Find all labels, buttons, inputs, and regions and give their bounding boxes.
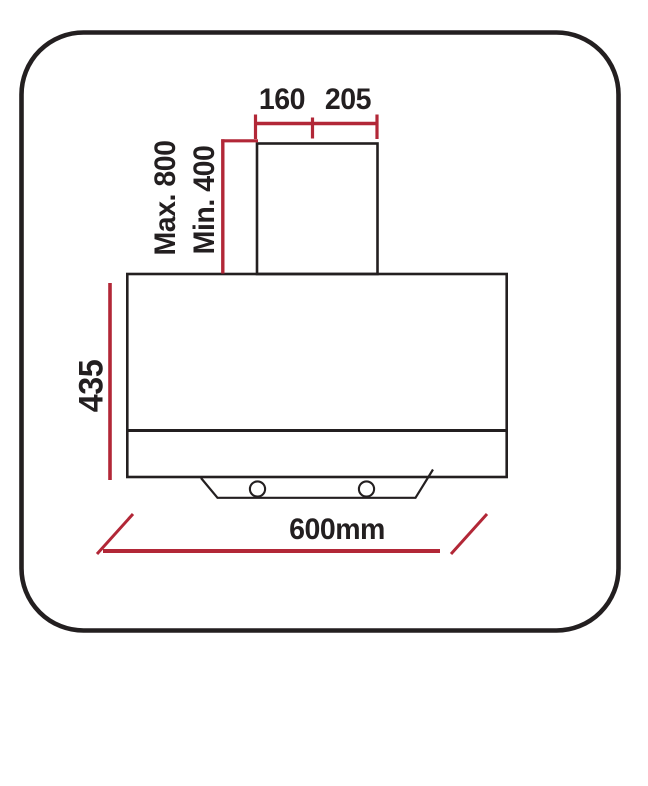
chimney-duct (257, 144, 378, 275)
chimney-max-height-label: Max. 800 (149, 140, 183, 255)
screw-hole-left (250, 481, 265, 496)
duct-side-width-label: 205 (325, 83, 371, 117)
hood-body (127, 274, 506, 477)
overall-width-slash-left (97, 514, 133, 554)
diagram-canvas: 160 205 Max. 800 Min. 400 435 600mm (0, 0, 648, 786)
overall-width-slash-right (451, 514, 487, 554)
body-height-label: 435 (73, 360, 112, 412)
screw-hole-right (359, 481, 374, 496)
hood-outline (127, 144, 507, 498)
overall-width-label: 600mm (289, 513, 385, 547)
duct-front-width-label: 160 (259, 83, 305, 117)
chimney-min-height-label: Min. 400 (188, 146, 222, 255)
bottom-panel-trapezoid (201, 470, 433, 498)
